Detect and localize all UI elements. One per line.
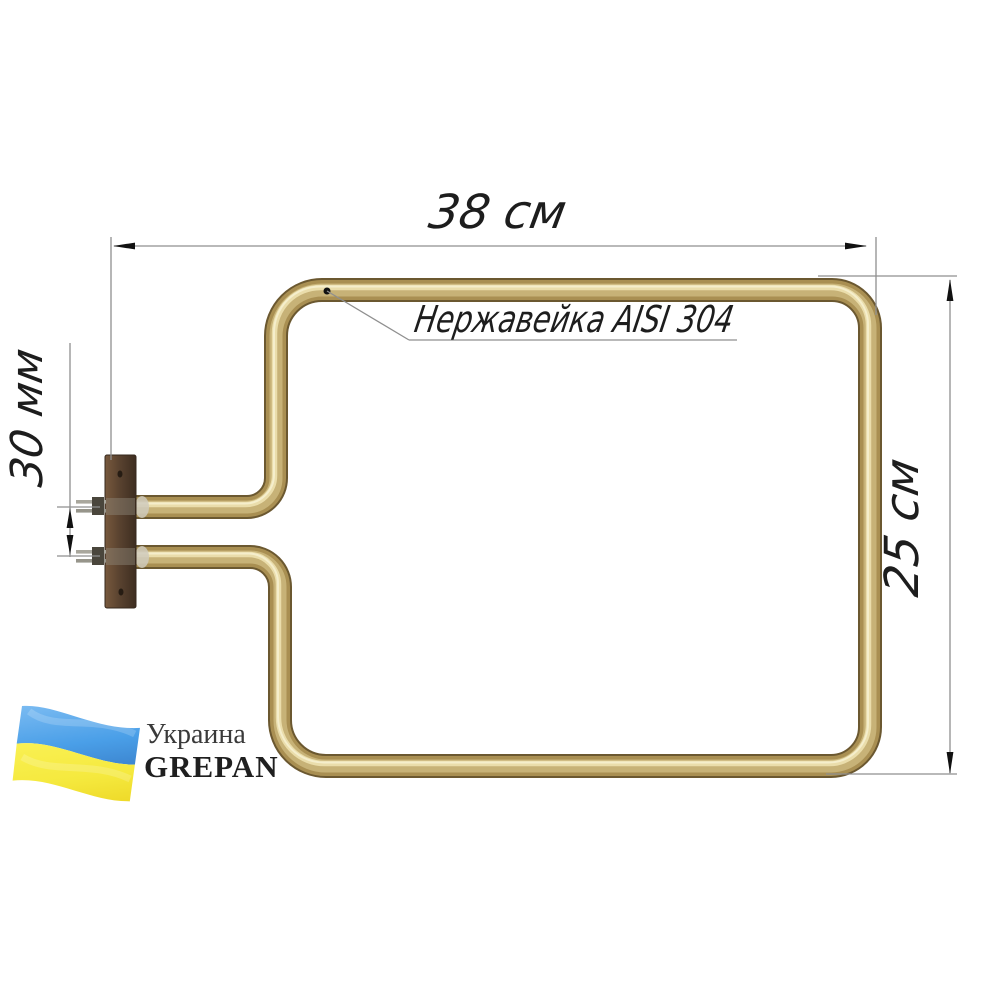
weld-mark (135, 546, 149, 568)
width-dimension-label: 38 см (425, 185, 571, 240)
height-dimension-label: 25 см (875, 454, 930, 600)
bracket-plate (105, 455, 136, 608)
dimension-pin-spacing: 30 мм (2, 343, 100, 557)
bracket-hole (118, 471, 123, 478)
arrow-down-icon (947, 752, 954, 774)
brand-label: GREPAN (144, 749, 279, 784)
pin-spacing-dimension-label: 30 мм (2, 345, 53, 490)
bracket-clamp (106, 548, 135, 565)
country-label: Украина (146, 719, 246, 750)
arrow-right-icon (845, 243, 867, 250)
ukraine-flag-icon (8, 704, 145, 804)
heating-element-diagram: 38 см 25 см 30 мм Нержавейка AISI 304 (0, 0, 1000, 1000)
product-image-canvas: 38 см 25 см 30 мм Нержавейка AISI 304 (0, 0, 1000, 1000)
arrow-left-icon (113, 243, 135, 250)
terminal-nut (92, 497, 104, 515)
arrow-down-icon (67, 535, 74, 555)
bracket-hole (119, 589, 124, 596)
arrow-up-icon (67, 508, 74, 528)
arrow-up-icon (947, 279, 954, 301)
heating-element-tube (116, 287, 870, 767)
weld-mark (135, 496, 149, 518)
bracket-clamp (106, 498, 135, 515)
dimension-height: 25 см (818, 276, 957, 774)
mounting-bracket (105, 455, 149, 608)
material-callout-label: Нержавейка AISI 304 (411, 297, 737, 341)
